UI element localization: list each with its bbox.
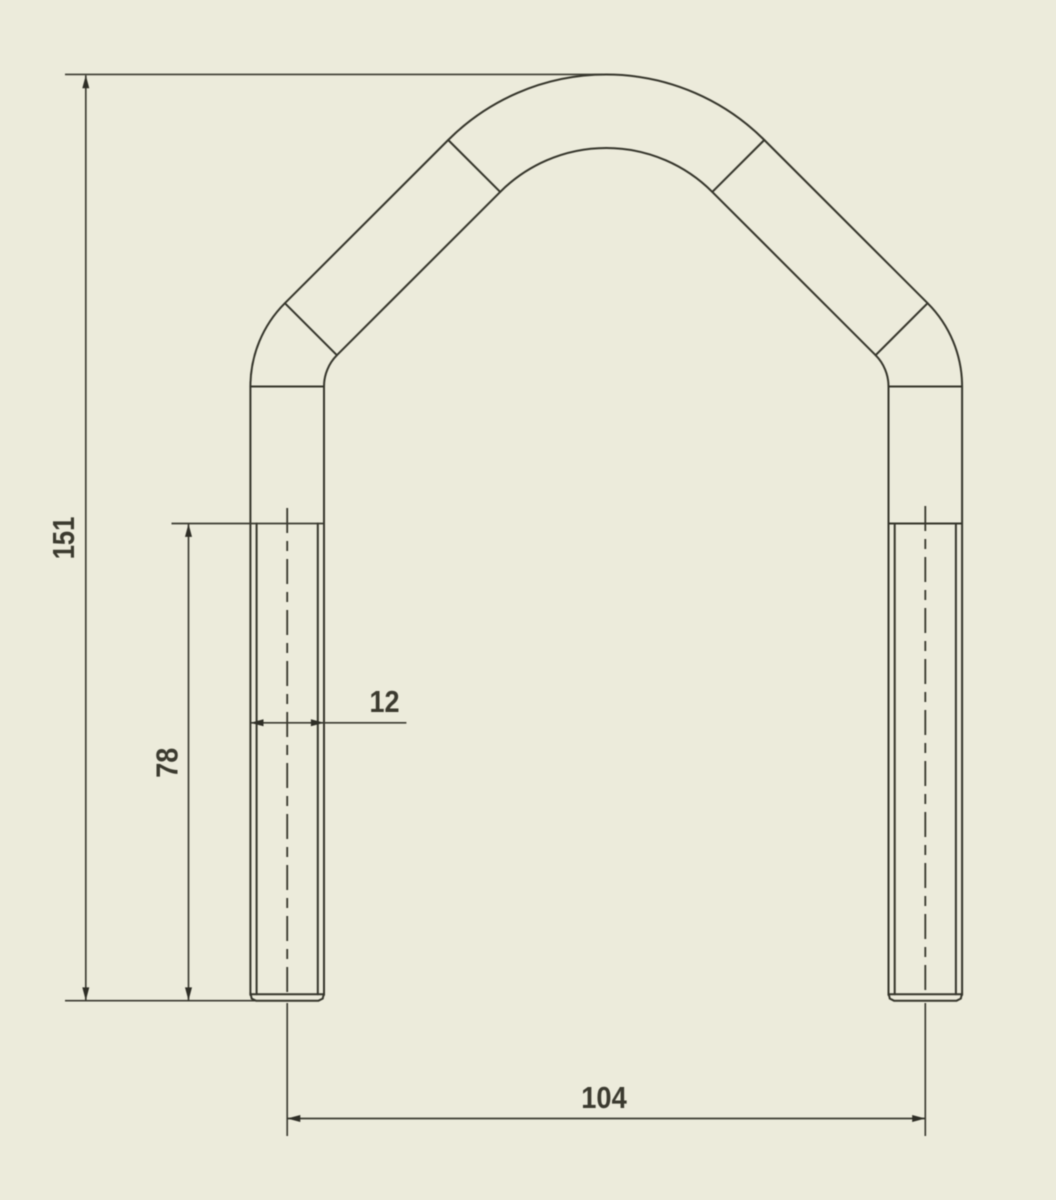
svg-text:12: 12 [370,684,400,719]
svg-text:104: 104 [581,1080,627,1115]
svg-text:151: 151 [46,517,81,560]
svg-text:78: 78 [150,748,185,778]
